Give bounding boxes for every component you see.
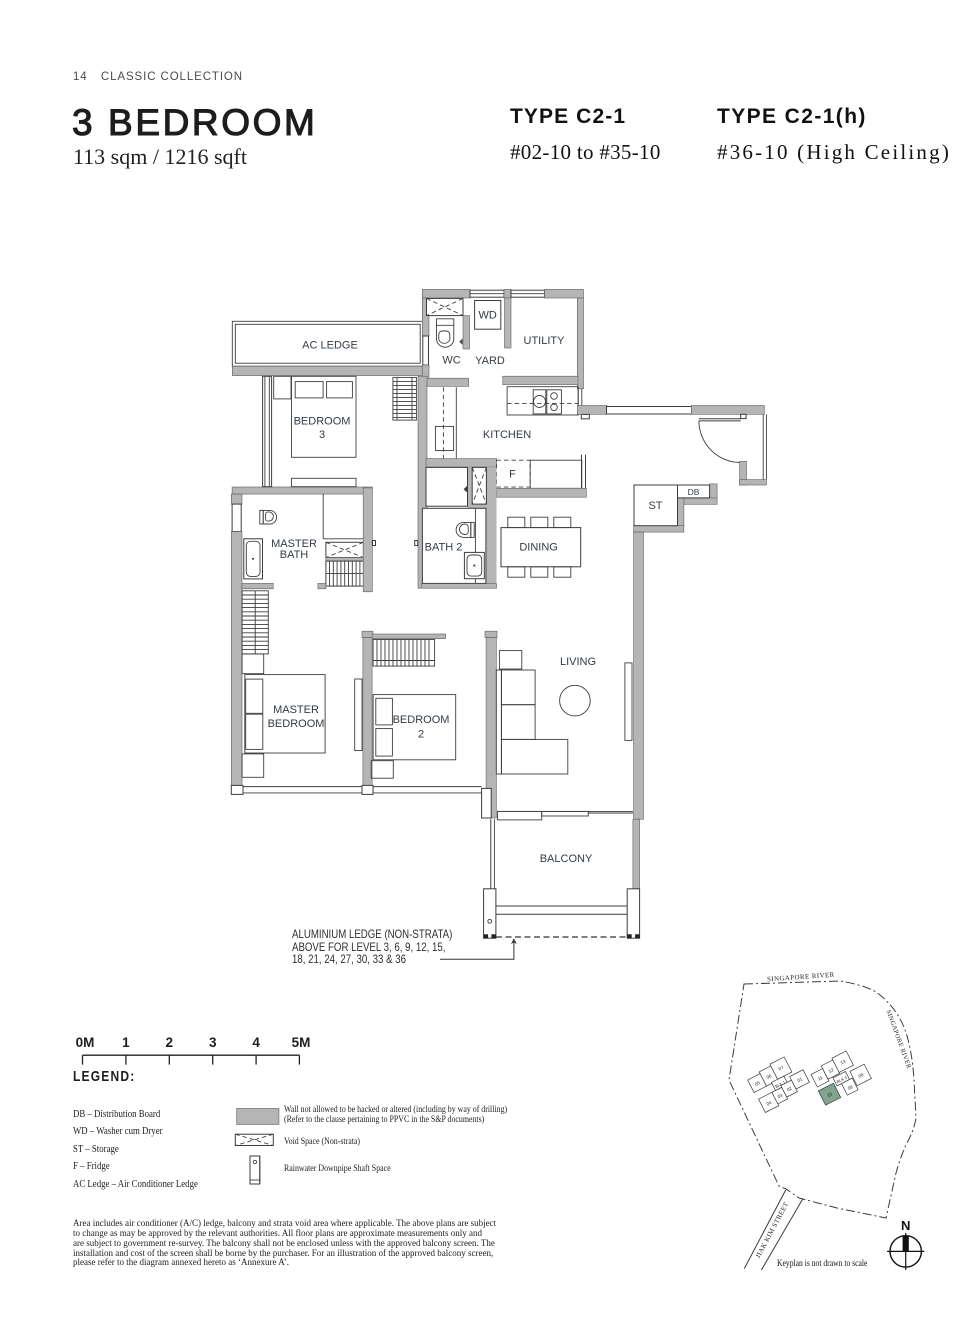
svg-text:BEDROOM: BEDROOM [268,718,325,730]
svg-text:UTILITY: UTILITY [524,335,566,347]
svg-text:BATH 2: BATH 2 [425,542,463,554]
svg-text:DINING: DINING [519,542,558,554]
svg-text:0M: 0M [76,1035,95,1050]
svg-text:WD: WD [479,309,497,321]
svg-text:3: 3 [319,429,325,441]
svg-text:KITCHEN: KITCHEN [483,429,531,441]
svg-text:BEDROOM: BEDROOM [393,714,450,726]
svg-text:2: 2 [166,1035,174,1050]
svg-text:2: 2 [418,729,424,741]
svg-text:AC LEDGE: AC LEDGE [302,340,358,352]
svg-text:N: N [901,1218,910,1233]
svg-text:MASTER: MASTER [273,704,319,716]
svg-text:BATH: BATH [280,549,309,561]
svg-text:BEDROOM: BEDROOM [294,416,351,428]
svg-text:DB: DB [688,487,700,497]
svg-text:4: 4 [252,1035,260,1050]
svg-text:YARD: YARD [475,355,505,367]
svg-text:WC: WC [442,355,460,367]
svg-text:ST: ST [648,500,662,512]
svg-text:1: 1 [122,1035,130,1050]
svg-text:BALCONY: BALCONY [540,853,593,865]
svg-text:F: F [509,469,516,481]
svg-text:LIVING: LIVING [560,656,596,668]
svg-text:3: 3 [209,1035,217,1050]
svg-text:5M: 5M [292,1035,311,1050]
